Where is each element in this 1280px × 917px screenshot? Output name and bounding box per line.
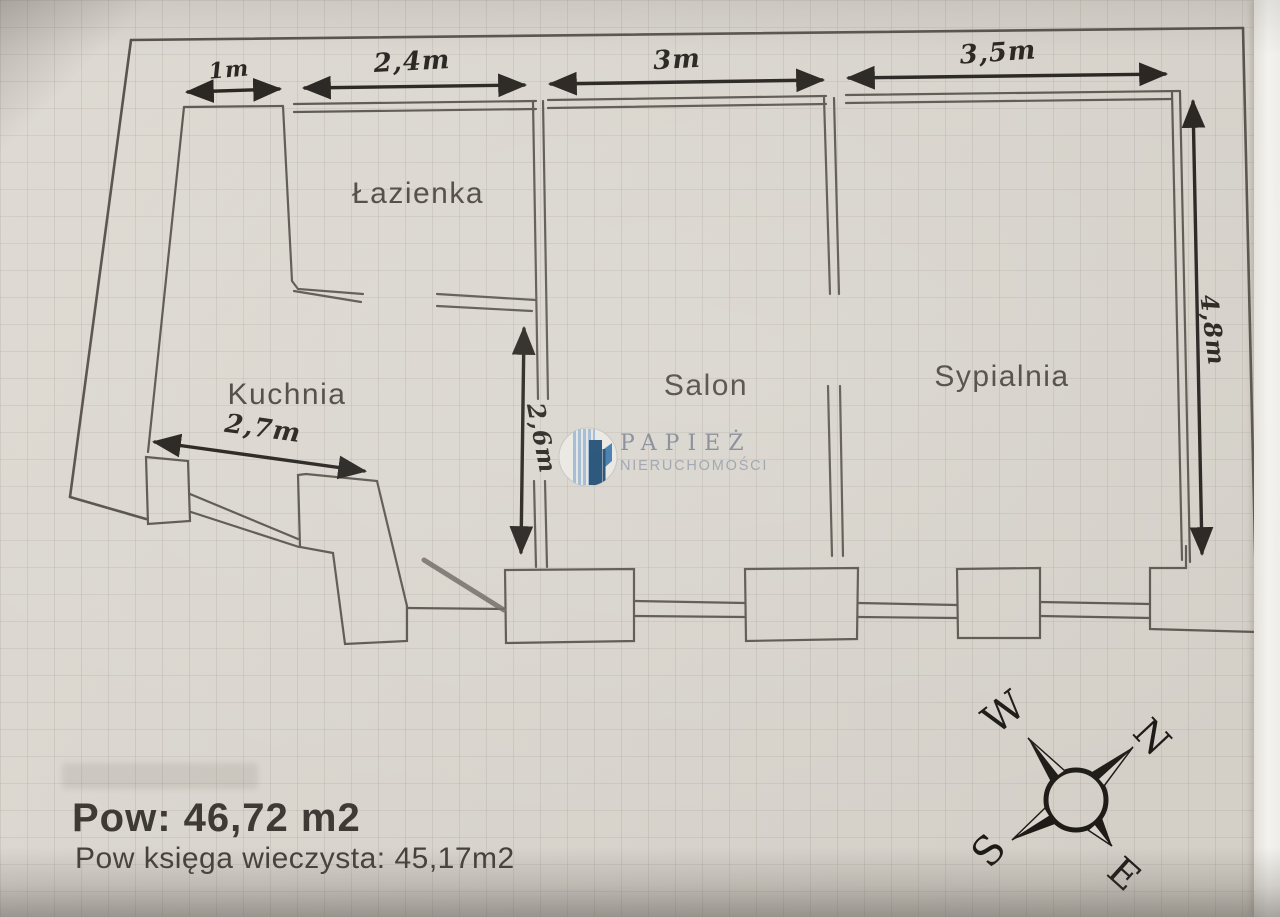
dimension-label-3-5m: 3,5m — [959, 35, 1038, 70]
compass-rose-icon — [1012, 738, 1133, 846]
interior-walls — [148, 91, 1190, 567]
arrow-3-5m — [849, 74, 1165, 78]
arrow-3m — [551, 80, 822, 84]
arrow-2-7m — [155, 442, 364, 471]
dimension-label-2-4m: 2,4m — [373, 45, 451, 79]
room-label-lazienka: Łazienka — [352, 177, 484, 211]
dimension-arrows — [155, 74, 1202, 553]
door-swing-line — [424, 560, 504, 610]
dimension-label-3m: 3m — [652, 44, 701, 76]
logo-subtitle-text: NIERUCHOMOŚCI — [620, 458, 768, 474]
arrow-1m — [188, 89, 279, 92]
window-bays — [505, 546, 1257, 643]
registry-area-text: Pow księga wieczysta: 45,17m2 — [75, 842, 515, 876]
room-label-kuchnia: Kuchnia — [228, 378, 347, 412]
logo-brand-text: PAPIEŻ — [620, 431, 752, 456]
room-label-salon: Salon — [664, 369, 748, 403]
kitchen-fixtures — [146, 457, 505, 644]
dimension-label-1m: 1m — [208, 55, 251, 84]
room-label-sypialnia: Sypialnia — [934, 360, 1069, 394]
photo-edge-right — [1254, 0, 1280, 917]
arrow-2-6m — [521, 329, 524, 552]
outer-walls — [70, 28, 1257, 632]
scan-smudge-artifact — [62, 763, 258, 789]
floor-plan-photo: Łazienka Kuchnia Salon Sypialnia 1m 2,4m… — [0, 0, 1280, 917]
arrow-2-4m — [305, 85, 524, 88]
logo-buildings-icon — [559, 428, 617, 486]
total-area-text: Pow: 46,72 m2 — [72, 796, 361, 841]
